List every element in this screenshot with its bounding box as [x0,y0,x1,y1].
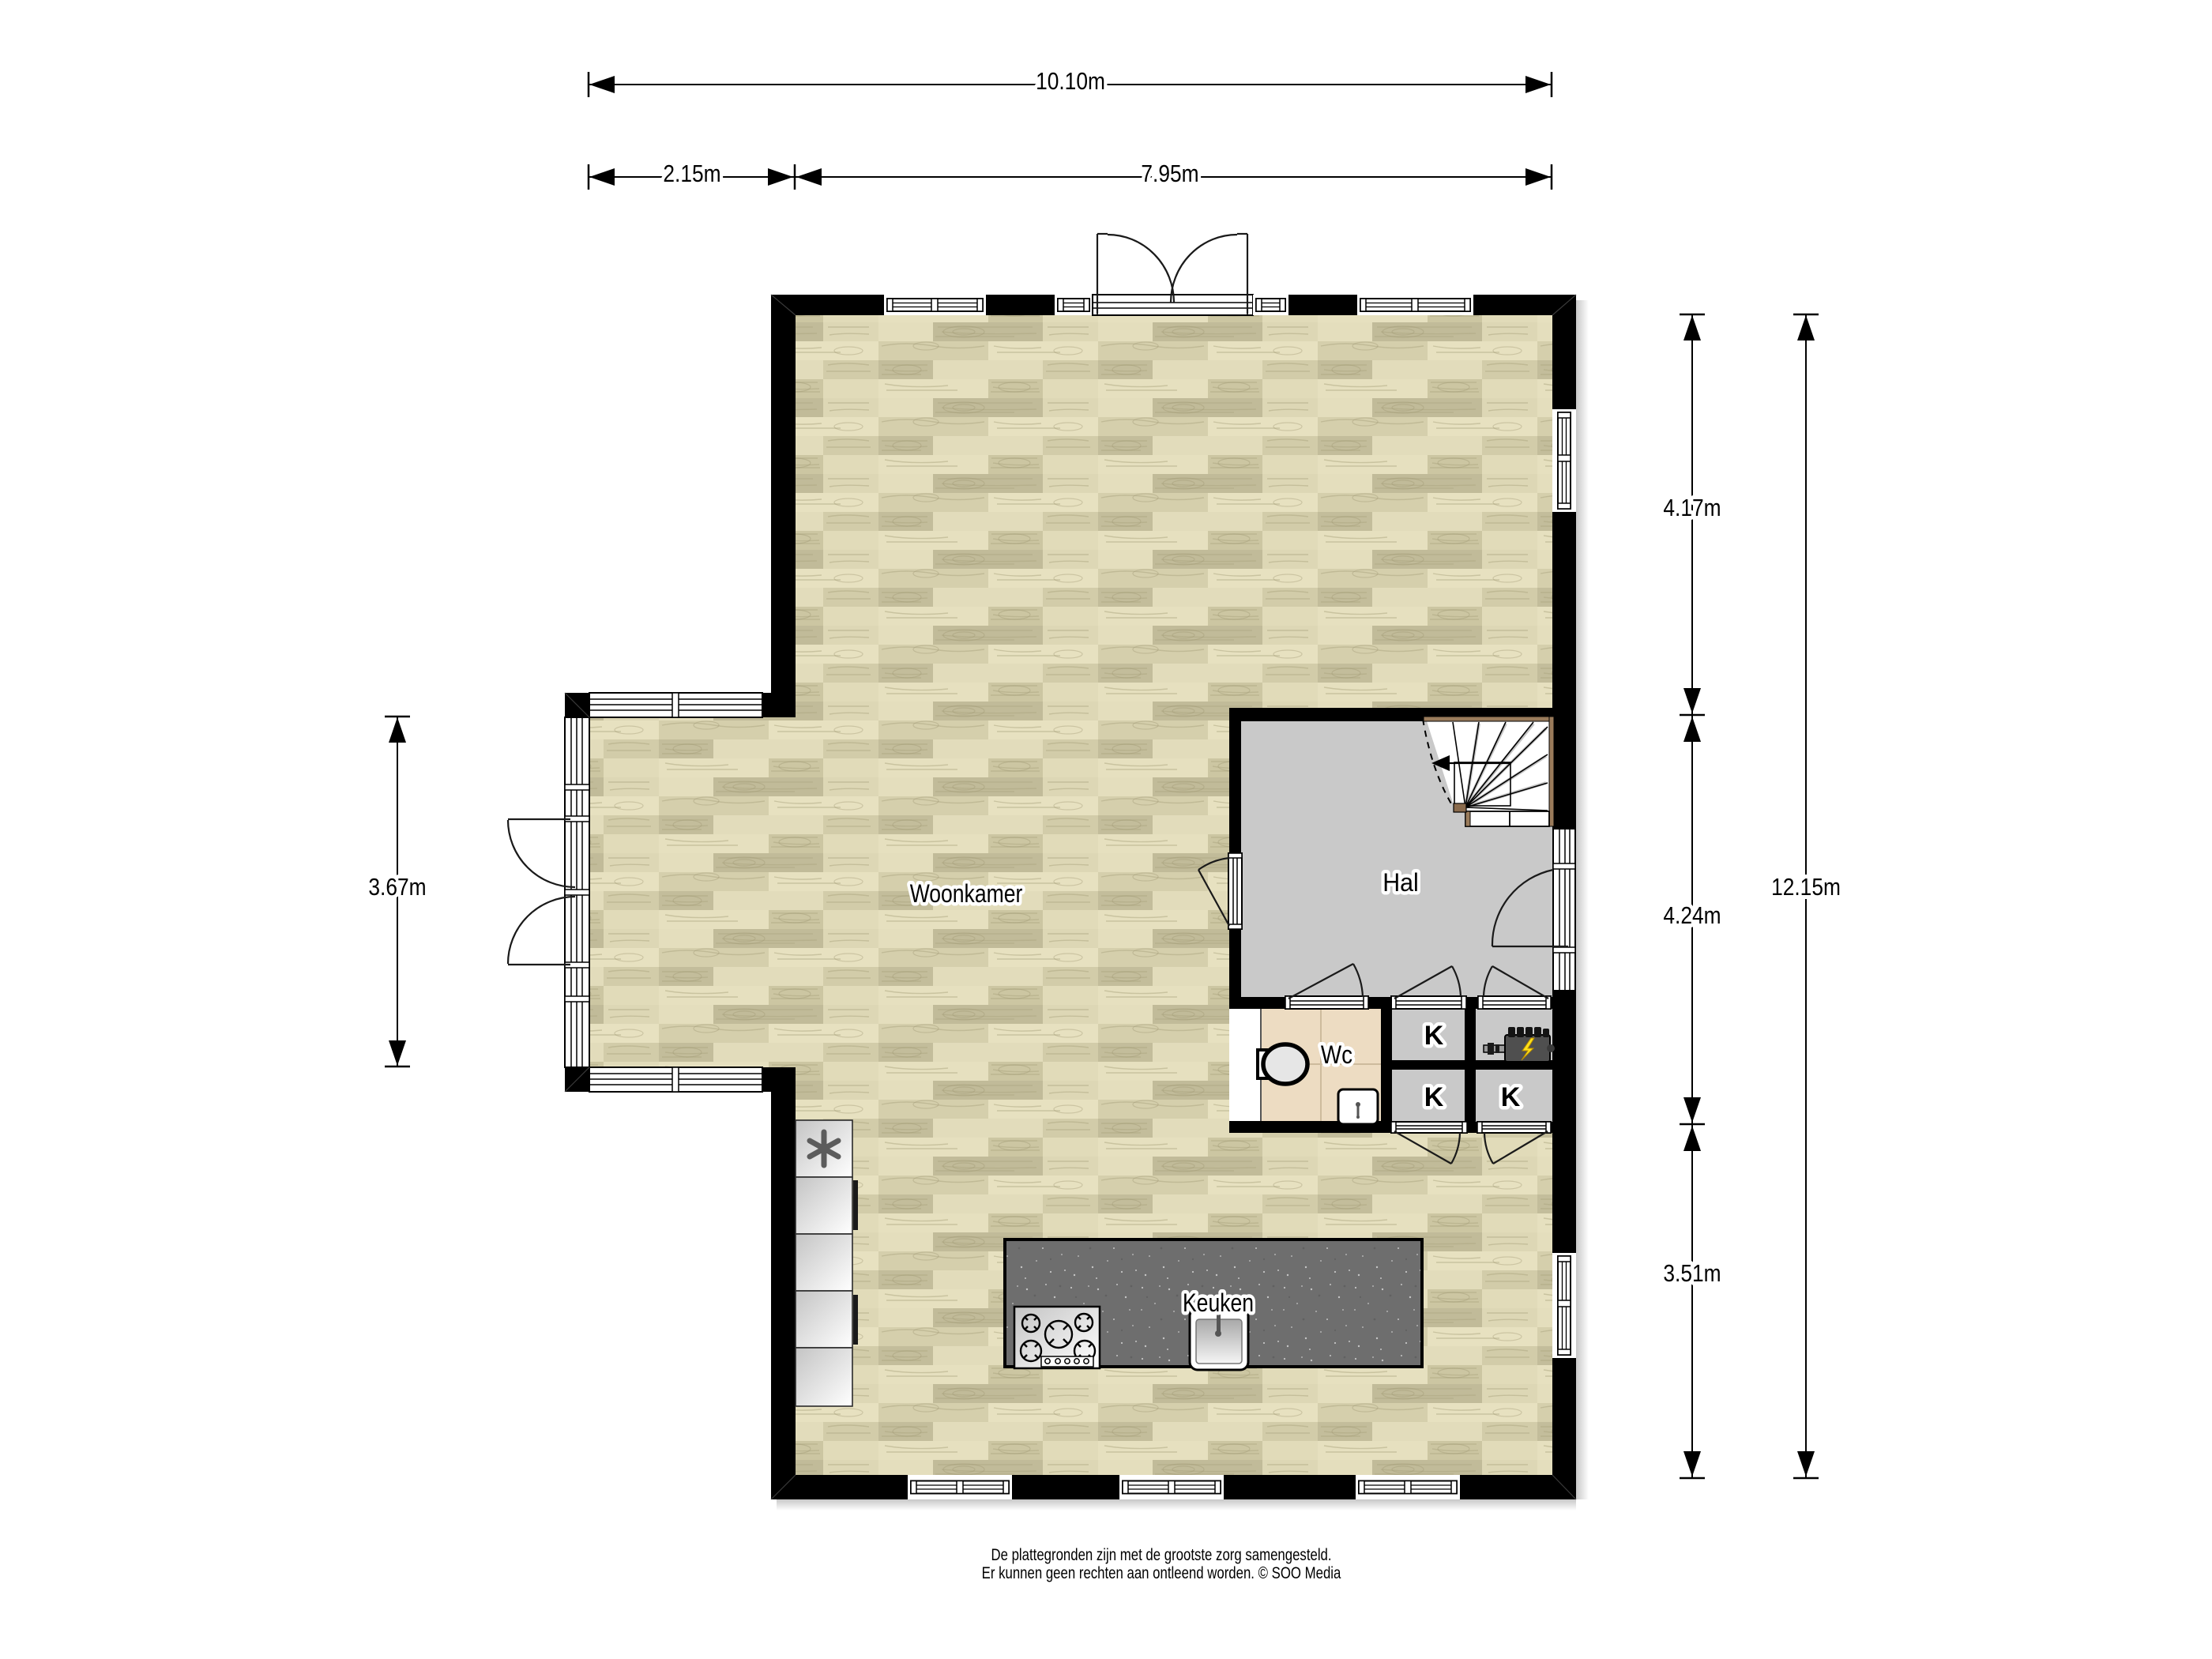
svg-text:3.67m: 3.67m [368,874,426,901]
svg-text:Wc: Wc [1321,1041,1352,1069]
svg-text:12.15m: 12.15m [1771,874,1841,901]
svg-text:De plattegronden zijn met de g: De plattegronden zijn met de grootste zo… [991,1546,1331,1564]
svg-text:Er kunnen geen rechten aan ont: Er kunnen geen rechten aan ontleend word… [982,1564,1341,1582]
svg-text:10.10m: 10.10m [1036,68,1105,95]
svg-text:2.15m: 2.15m [663,160,720,187]
svg-text:Woonkamer: Woonkamer [910,880,1023,908]
svg-text:Hal: Hal [1382,868,1419,897]
svg-text:7.95m: 7.95m [1141,160,1198,187]
svg-text:K: K [1501,1082,1521,1112]
svg-text:Keuken: Keuken [1183,1289,1254,1318]
svg-text:4.17m: 4.17m [1663,495,1721,521]
svg-text:K: K [1424,1021,1444,1051]
svg-text:4.24m: 4.24m [1663,902,1721,929]
svg-text:K: K [1424,1082,1444,1112]
svg-text:3.51m: 3.51m [1663,1260,1721,1287]
